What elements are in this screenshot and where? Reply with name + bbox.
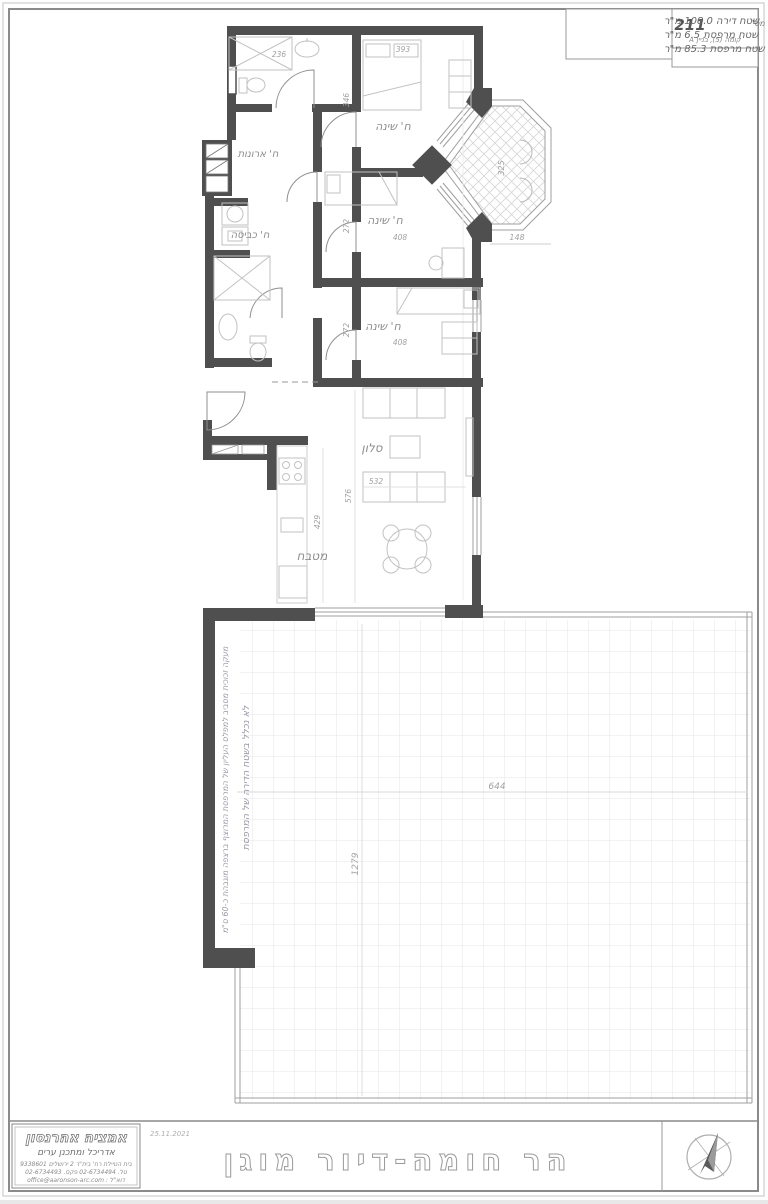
bedroom2-label: ח' שינה	[367, 214, 403, 227]
architect-address: בית הטיילת רח' בית"ר 2 ירושלים 9338601	[20, 1161, 132, 1168]
project-title: הר חומה-דיור מוגן	[223, 1143, 572, 1177]
dim-272b: 272	[342, 323, 351, 338]
architect-title: אדריכל ומתכנן ערים	[37, 1148, 116, 1158]
dim-393: 393	[396, 45, 411, 54]
dim-532: 532	[369, 477, 384, 486]
living-label: סלון	[361, 441, 383, 455]
plan-date: 25.11.2021	[150, 1130, 190, 1138]
terrace-note-2: לא נכלל בשטח הדירה של המרפסת	[241, 705, 252, 850]
terrace-height-dim: 1279	[351, 852, 361, 875]
bedroom3-label: ח' שינה	[365, 320, 401, 333]
plan-sheet: 211 דירה מס' קומה (5), בניין A שטח דירה …	[0, 0, 768, 1200]
architect-phones: טל. 02-6734494 פקס. 02-6734493	[25, 1169, 127, 1176]
dim-408a: 408	[393, 233, 408, 242]
dim-576: 576	[344, 489, 353, 504]
bedroom1-label: ח' שינה	[375, 120, 411, 133]
dim-272a: 272	[342, 219, 351, 234]
architect-email: דוא"ל : office@aaronson-arc.com	[27, 1177, 126, 1184]
closet-room-label: ח' ארונות	[238, 149, 279, 160]
dim-236: 236	[272, 50, 287, 59]
terrace-note-1: מעקה זכוכית מסביב למפלס העליון של המרפסת…	[221, 646, 230, 933]
floorplan-drawing: 211 דירה מס' קומה (5), בניין A שטח דירה …	[0, 0, 768, 1200]
area-line-1: שטח דירה 108.0 מ"ר	[664, 16, 760, 27]
terrace-width-dim: 644	[488, 782, 505, 792]
architect-name: אמציה אהרנסון	[25, 1130, 128, 1146]
kitchen-label: מטבח	[297, 549, 329, 563]
balcony-height-dim: 325	[497, 160, 506, 175]
laundry-label: ח' כביסה	[231, 230, 270, 241]
dim-346: 346	[342, 93, 351, 108]
balcony-width-dim: 148	[509, 233, 524, 242]
area-line-2: שטח מרפסת 6.5 מ"ר	[664, 30, 759, 41]
terrace: 644 1279 מעקה זכוכית מסביב למפלס העליון …	[221, 612, 752, 1103]
title-block: 211 דירה מס' קומה (5), בניין A שטח דירה …	[566, 9, 768, 67]
dim-429: 429	[313, 515, 322, 530]
dim-408b: 408	[393, 338, 408, 347]
area-line-3: שטח מרפסת 85.3 מ"ר	[664, 44, 766, 55]
